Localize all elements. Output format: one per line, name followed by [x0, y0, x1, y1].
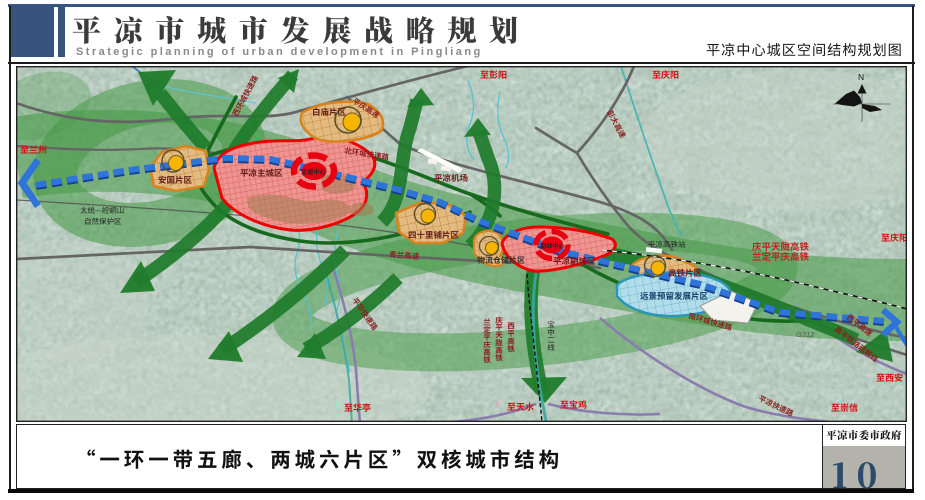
svg-text:主城中心: 主城中心	[301, 167, 327, 176]
svg-text:平凉高铁站: 平凉高铁站	[648, 239, 686, 250]
svg-text:至崇信: 至崇信	[831, 401, 858, 414]
svg-text:白庙片区: 白庙片区	[312, 106, 347, 118]
svg-text:至庆阳: 至庆阳	[881, 231, 907, 244]
svg-text:至宝鸡: 至宝鸡	[560, 398, 587, 411]
svg-text:物流仓储片区: 物流仓储片区	[477, 255, 525, 266]
svg-text:宝中二线: 宝中二线	[546, 320, 557, 351]
svg-text:至庆阳: 至庆阳	[652, 68, 679, 81]
svg-text:至天水: 至天水	[507, 400, 534, 413]
svg-text:庆平天陇高铁: 庆平天陇高铁	[494, 316, 505, 362]
svg-text:自然保护区: 自然保护区	[84, 216, 122, 227]
svg-text:西平高铁: 西平高铁	[506, 322, 517, 353]
svg-text:至彭阳: 至彭阳	[480, 68, 507, 81]
svg-text:平凉机场: 平凉机场	[434, 172, 469, 184]
svg-text:副城中心: 副城中心	[540, 241, 566, 250]
svg-text:兰定平庆高铁: 兰定平庆高铁	[752, 249, 810, 263]
svg-text:兰定平庆高铁: 兰定平庆高铁	[482, 318, 493, 364]
svg-text:太统—崆峒山: 太统—崆峒山	[80, 205, 124, 216]
svg-text:平凉主城区: 平凉主城区	[240, 167, 283, 179]
svg-text:G312: G312	[796, 330, 815, 339]
svg-text:远景预留发展片区: 远景预留发展片区	[640, 290, 709, 302]
svg-text:青兰高速: 青兰高速	[389, 249, 420, 262]
svg-text:高铁片区: 高铁片区	[668, 267, 703, 279]
svg-text:至西安: 至西安	[876, 371, 903, 384]
svg-text:N: N	[858, 72, 864, 82]
svg-text:至华亭: 至华亭	[344, 401, 371, 414]
svg-text:安国片区: 安国片区	[158, 174, 193, 186]
svg-text:至兰州: 至兰州	[20, 143, 47, 156]
svg-text:四十里铺片区: 四十里铺片区	[408, 229, 460, 241]
svg-text:平凉副城区: 平凉副城区	[553, 255, 596, 267]
